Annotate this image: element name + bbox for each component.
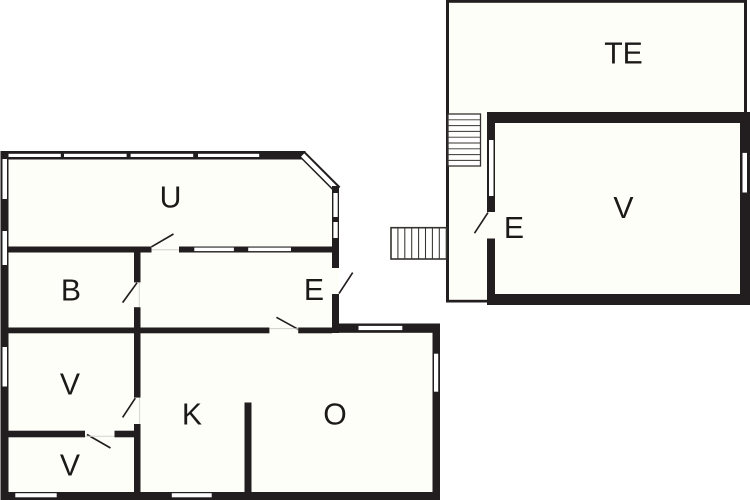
svg-text:U: U: [160, 182, 182, 215]
svg-text:TE: TE: [604, 38, 643, 71]
svg-text:V: V: [60, 450, 80, 483]
svg-text:O: O: [323, 399, 346, 432]
svg-text:V: V: [60, 369, 80, 402]
svg-text:V: V: [613, 192, 633, 225]
svg-text:E: E: [504, 212, 524, 245]
svg-text:E: E: [304, 274, 324, 307]
svg-text:K: K: [182, 399, 202, 432]
svg-text:B: B: [61, 275, 81, 308]
